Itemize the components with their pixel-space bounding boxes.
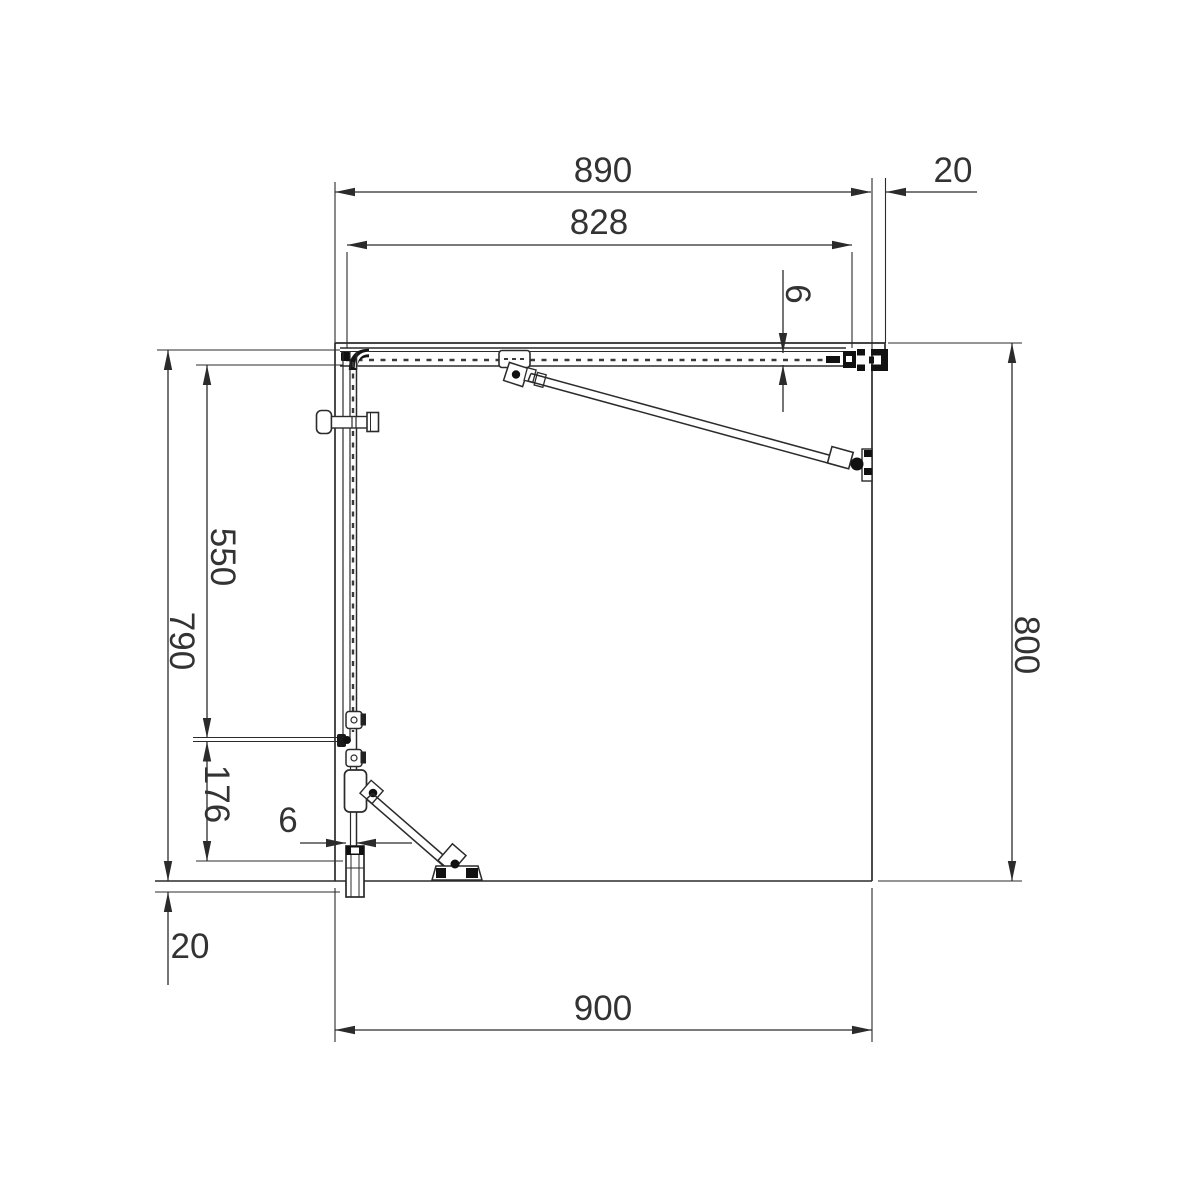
dim-label-6-left: 6 <box>268 802 308 840</box>
dim-label-790: 790 <box>162 586 200 696</box>
door-knob <box>317 411 379 434</box>
dim-label-20-left: 20 <box>157 928 223 966</box>
drawing-sheet: 890 20 828 6 800 790 550 176 6 20 900 <box>0 0 1200 1200</box>
support-bar-top <box>528 374 849 469</box>
dim-label-890: 890 <box>540 152 666 190</box>
dimension-lines <box>164 188 1016 1034</box>
dim-label-550: 550 <box>203 502 241 612</box>
dim-label-6-top: 6 <box>778 274 816 314</box>
dim-828 <box>347 241 852 249</box>
top-glass-panel <box>340 348 846 366</box>
panel-hinge <box>337 712 366 767</box>
dim-label-20-top: 20 <box>920 152 986 190</box>
latch-block <box>499 351 547 388</box>
pivot-block <box>345 770 384 812</box>
tray-outline <box>155 343 885 881</box>
extension-lines <box>155 178 1022 1042</box>
right-wall-profile <box>843 349 888 371</box>
wall-bracket <box>827 447 872 481</box>
dim-label-176: 176 <box>197 739 235 849</box>
floor-foot <box>432 844 482 880</box>
corner-joint <box>341 352 369 370</box>
dim-label-828: 828 <box>536 204 662 242</box>
bottom-wall-profile <box>346 846 364 897</box>
dim-label-800: 800 <box>1007 590 1045 700</box>
dim-label-900: 900 <box>540 990 666 1028</box>
